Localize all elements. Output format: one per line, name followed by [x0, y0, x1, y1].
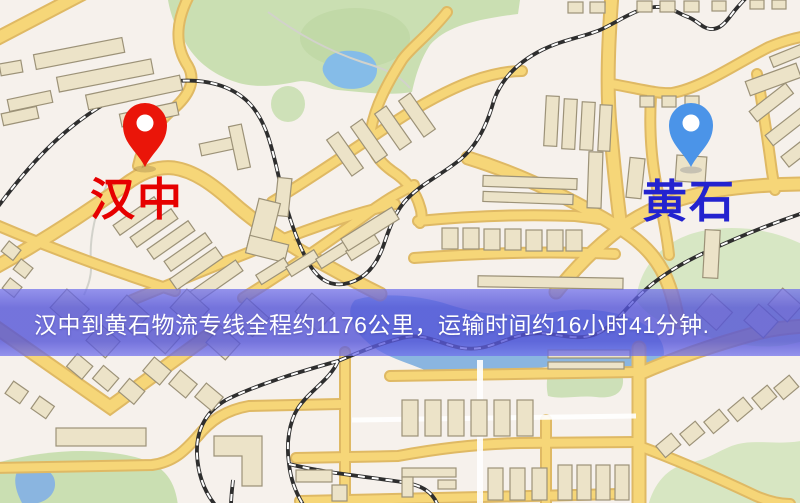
destination-label: 黄石	[642, 179, 736, 224]
destination-pin-body[interactable]	[669, 103, 713, 167]
map-canvas[interactable]	[0, 0, 800, 503]
route-info-text: 汉中到黄石物流专线全程约1176公里，运输时间约16小时41分钟.	[0, 306, 710, 340]
origin-label: 汉中	[90, 177, 184, 222]
origin-pin[interactable]	[121, 101, 169, 169]
origin-pin-body[interactable]	[123, 103, 167, 167]
destination-pin-hole	[683, 115, 700, 132]
map-screenshot: 汉中 黄石 汉中到黄石物流专线全程约1176公里，运输时间约16小时41分钟.	[0, 0, 800, 503]
route-info-banner: 汉中到黄石物流专线全程约1176公里，运输时间约16小时41分钟.	[0, 289, 800, 356]
destination-pin[interactable]	[667, 101, 715, 169]
origin-pin-hole	[137, 115, 154, 132]
